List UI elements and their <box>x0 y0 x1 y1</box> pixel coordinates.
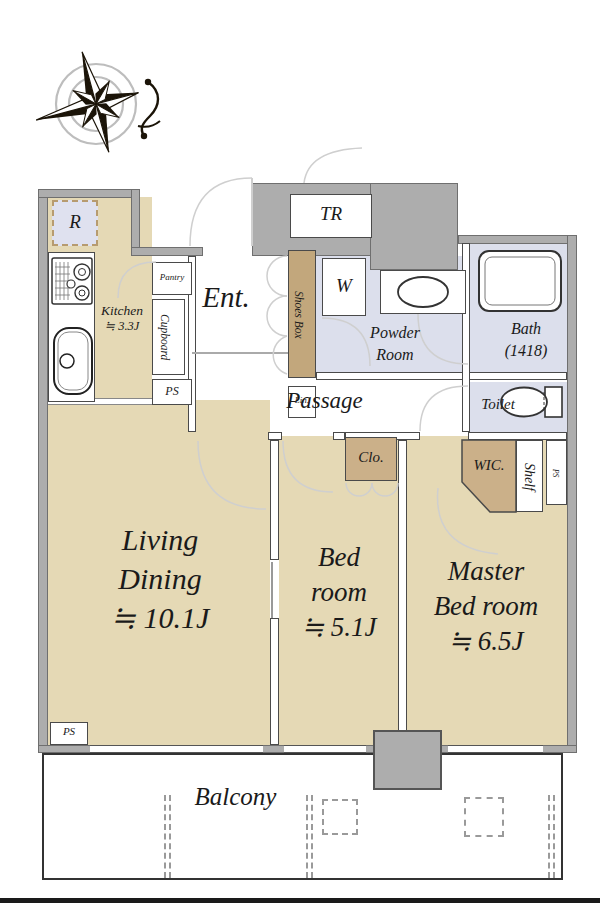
closet-label: Clo. <box>345 448 397 466</box>
living-size: ≒ 10.1J <box>65 598 255 637</box>
living-line1: Living <box>65 520 255 559</box>
balcony-label: Balcony <box>158 782 313 813</box>
bedroom-size: ≒ 5.1J <box>283 610 395 645</box>
master-bedroom-label: Master Bed room ≒ 6.5J <box>402 554 570 659</box>
cupboard-label: Cupboard <box>158 302 172 372</box>
bedroom-label: Bed room ≒ 5.1J <box>283 540 395 645</box>
master-line2: Bed room <box>402 589 570 624</box>
powder-line2: Room <box>330 344 460 366</box>
ps-kitchen-label: PS <box>152 384 192 399</box>
washer-label: W <box>322 274 366 297</box>
bedroom-line2: room <box>283 575 395 610</box>
bedroom-line1: Bed <box>283 540 395 575</box>
compass-rose-icon <box>22 40 160 168</box>
kitchen-name: Kitchen <box>72 303 172 319</box>
ps-right-label: PS <box>551 455 560 491</box>
passage-label: Passage <box>252 387 397 415</box>
ps-living-label: PS <box>50 725 88 738</box>
entrance-label: Ent. <box>186 280 266 315</box>
master-size: ≒ 6.5J <box>402 624 570 659</box>
bathtub-icon <box>479 251 561 311</box>
kitchen-label: Kitchen ≒ 3.3J <box>72 303 172 335</box>
tr-label: TR <box>290 202 372 225</box>
pantry-label: Pantry <box>152 272 192 283</box>
stove-icon <box>52 258 92 304</box>
bath-line1: Bath <box>490 318 562 340</box>
bath-line2: (1418) <box>490 340 562 362</box>
living-dining-label: Living Dining ≒ 10.1J <box>65 520 255 637</box>
master-line1: Master <box>402 554 570 589</box>
living-line2: Dining <box>65 559 255 598</box>
linen-label: Lin. <box>288 395 316 406</box>
floor-plan: Kitchen ≒ 3.3J Ent. Passage Living Dinin… <box>0 0 600 908</box>
wic-label: WIC. <box>462 456 516 474</box>
refrigerator-label: R <box>52 210 98 233</box>
plan-overlay <box>0 0 600 908</box>
powder-room-label: Powder Room <box>330 322 460 365</box>
wic-area <box>462 440 516 512</box>
shoes-box-label: Shoes Box <box>292 258 306 372</box>
sink-icon <box>54 328 92 394</box>
shelf-label: Shelf <box>521 446 538 508</box>
kitchen-size: ≒ 3.3J <box>72 319 172 334</box>
powder-line1: Powder <box>330 322 460 344</box>
toilet-label: Toilet <box>472 395 524 413</box>
basin-icon <box>398 277 448 307</box>
bath-label: Bath (1418) <box>490 318 562 361</box>
